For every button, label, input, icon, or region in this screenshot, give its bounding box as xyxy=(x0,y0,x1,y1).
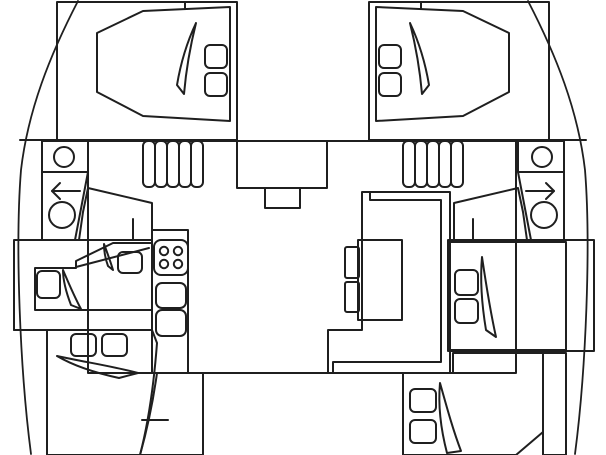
galley-sink-icon xyxy=(156,310,186,336)
burner-icon xyxy=(174,247,182,255)
pillow xyxy=(379,73,401,96)
console-seat xyxy=(265,188,300,208)
pillow xyxy=(455,299,478,323)
galley xyxy=(152,230,188,373)
forward-console xyxy=(237,141,327,208)
forward-port-cabin xyxy=(57,2,237,140)
forward-starboard-cabin xyxy=(369,2,549,140)
aft-port-cabin xyxy=(14,330,203,455)
stair-step xyxy=(155,141,167,187)
sink-icon xyxy=(54,147,74,167)
stair-step xyxy=(143,141,155,187)
burner-icon xyxy=(174,260,182,268)
galley-sink-icon xyxy=(156,283,186,308)
console-counter xyxy=(237,141,327,188)
pillow xyxy=(379,45,401,68)
toilet-seat xyxy=(534,229,554,238)
pillow xyxy=(410,389,436,412)
port-hull-outline xyxy=(18,1,78,454)
door-swing-icon xyxy=(177,23,196,94)
burner-icon xyxy=(160,247,168,255)
mid-port-cabin xyxy=(14,240,152,330)
pillow xyxy=(205,73,227,96)
stair-step xyxy=(451,141,463,187)
salon-table xyxy=(358,240,402,320)
door-swing-icon xyxy=(410,23,429,94)
forward-starboard-bed xyxy=(376,7,509,121)
mid-port-bed xyxy=(35,243,152,310)
stair-step xyxy=(167,141,179,187)
door-swing-icon xyxy=(57,356,138,378)
port-stairwell xyxy=(79,188,152,240)
starboard-hull-outline xyxy=(528,1,588,454)
stool xyxy=(345,247,359,278)
stair-step xyxy=(427,141,439,187)
mid-starboard-cabin xyxy=(448,240,594,351)
bed-edge-line xyxy=(76,248,149,267)
stair-step xyxy=(439,141,451,187)
floorplan-svg xyxy=(0,0,606,455)
aft-starboard-bed xyxy=(403,353,543,455)
sink-drain-dot xyxy=(62,155,66,159)
stair-step xyxy=(179,141,191,187)
pillow xyxy=(102,334,127,356)
starboard-stairs xyxy=(403,141,463,187)
dinette xyxy=(328,192,450,373)
port-stairs xyxy=(143,141,203,187)
stair-step xyxy=(191,141,203,187)
port-hull-step xyxy=(140,373,203,455)
pillow xyxy=(37,271,60,298)
door-swing-icon xyxy=(481,257,496,337)
pillow xyxy=(205,45,227,68)
pillow xyxy=(410,420,436,443)
stair-step xyxy=(415,141,427,187)
forward-port-bed xyxy=(97,7,230,121)
sink-icon xyxy=(532,147,552,167)
catamaran-floorplan xyxy=(0,0,606,455)
toilet-icon xyxy=(49,202,75,228)
sink-drain-dot xyxy=(540,155,544,159)
pillow xyxy=(71,334,96,356)
door-swing-icon xyxy=(63,270,81,309)
pillow xyxy=(455,270,478,295)
toilet-icon xyxy=(531,202,557,228)
starboard-hull-step xyxy=(543,353,566,455)
door-swing-icon xyxy=(439,383,461,453)
stair-step xyxy=(403,141,415,187)
port-stairwell-floor xyxy=(79,188,152,240)
stool xyxy=(345,282,359,312)
stove-icon xyxy=(154,240,188,275)
aft-starboard-cabin xyxy=(403,353,566,455)
burner-icon xyxy=(160,260,168,268)
toilet-seat xyxy=(52,229,72,238)
